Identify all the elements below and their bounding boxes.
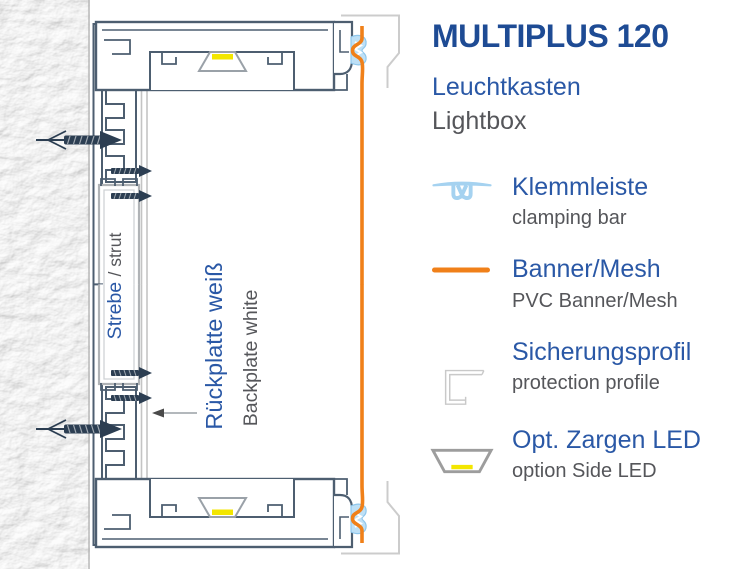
product-subtitle-en: Lightbox (430, 108, 754, 136)
backplate-arrow (152, 409, 197, 418)
protection-profile-icon (430, 373, 494, 400)
legend-item-protection-profile: Sicherungsprofil protection profile (430, 339, 754, 400)
corner-hook-body (334, 22, 352, 74)
legend-label-en: option Side LED (512, 460, 701, 482)
legend-label-de: Banner/Mesh (512, 256, 678, 284)
backplate-label-de: Rückplatte weiß (201, 262, 227, 429)
product-title: MULTIPLUS 120 (430, 20, 754, 54)
strut-label: Strebe / strut (104, 233, 126, 340)
info-panel: MULTIPLUS 120 Leuchtkasten Lightbox Klem… (430, 20, 754, 509)
wall-texture (0, 0, 90, 569)
legend-item-clamping-bar: Klemmleiste clamping bar (430, 174, 754, 230)
legend-label-de: Klemmleiste (512, 174, 648, 202)
legend-label-en: PVC Banner/Mesh (512, 290, 678, 312)
side-led-icon (430, 448, 494, 475)
legend-item-banner-mesh: Banner/Mesh PVC Banner/Mesh (430, 256, 754, 312)
cross-section-drawing: Strebe / strut Rückplatte weiß Backplate… (0, 0, 430, 569)
legend-label-de: Sicherungsprofil (512, 339, 691, 367)
legend: Klemmleiste clamping bar Banner/Mesh PVC… (430, 174, 754, 483)
corner-step (334, 74, 347, 90)
profile-top-half (36, 16, 399, 285)
backplate-label-en: Backplate white (240, 290, 262, 427)
banner-line-icon (430, 256, 494, 283)
product-subtitle-de: Leuchtkasten (430, 74, 754, 102)
backplate-strip (142, 88, 148, 285)
legend-item-side-led: Opt. Zargen LED option Side LED (430, 427, 754, 483)
clamping-bar-icon (430, 174, 494, 201)
legend-label-en: clamping bar (512, 207, 648, 229)
legend-label-en: protection profile (512, 372, 691, 394)
lightbox-profile-diagram: Strebe / strut Rückplatte weiß Backplate… (0, 0, 756, 569)
legend-label-de: Opt. Zargen LED (512, 427, 701, 455)
led-light-bar (212, 54, 233, 60)
